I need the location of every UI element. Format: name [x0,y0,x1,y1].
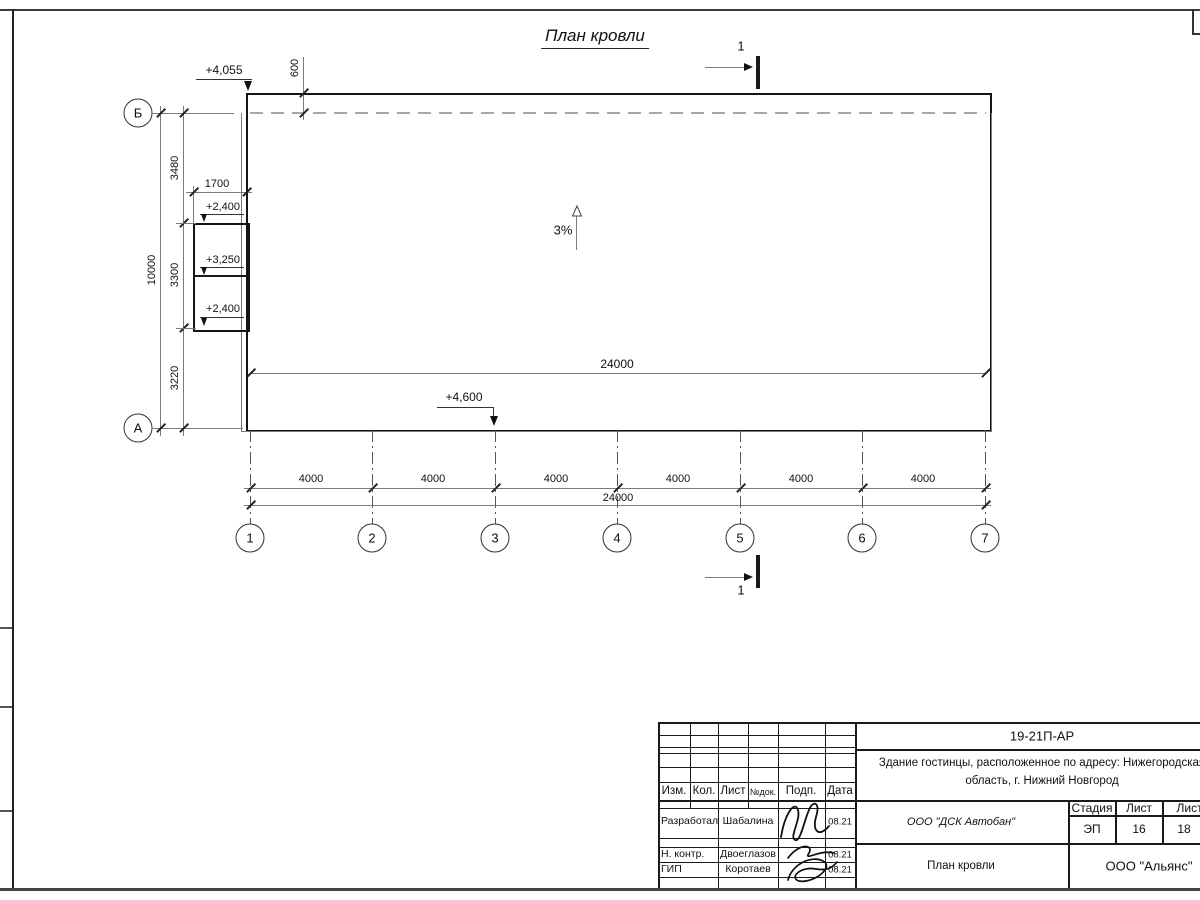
tb-line [658,722,1200,724]
section-mark-arrow [744,573,753,581]
drawing-sheet: План кровли Б А 3480 3300 3220 10000 600… [0,0,1200,900]
tb-role: Н. контр. [661,848,704,860]
frame-corner-horizontal [1192,33,1200,35]
frame-top [0,9,1200,11]
column-axis-bubble: 6 [848,524,877,553]
parapet-edge-right [991,113,992,432]
margin-tick [0,627,12,629]
axis-label: 5 [736,531,743,546]
grid-line [372,430,373,524]
elevation-leader [200,267,244,268]
dimension-line-left-chain [183,106,184,436]
row-axis-bubble: А [124,414,153,443]
tb-name: Коротаев [725,863,770,875]
frame-bottom [0,888,1200,891]
tb-stage-value: ЭП [1083,822,1100,836]
roof-outline [246,93,992,432]
elevation-label: +4,055 [205,63,242,77]
tb-line [1068,800,1070,888]
dim-label: 4000 [911,473,935,485]
tb-line [1162,800,1164,843]
signature-scribble [782,840,840,888]
slope-arrow-head-icon [571,205,583,217]
section-mark-bar [756,56,760,89]
grid-line [495,430,496,524]
axis-label: Б [134,106,143,121]
tb-stage-value: 18 [1177,822,1190,836]
tb-stage-header: Лист [1126,801,1152,815]
frame-left [12,9,14,888]
dim-label: 3480 [169,156,181,180]
tb-line [658,722,660,888]
section-mark-line [705,577,745,578]
tb-stage-value: 16 [1132,822,1145,836]
dim-label: 4000 [421,473,445,485]
tb-project-line2: область, г. Нижний Новгород [965,775,1118,787]
annex-roof-divider [193,275,246,277]
column-axis-bubble: 4 [603,524,632,553]
tb-header-cell: Дата [827,785,852,797]
slope-label: 3% [554,223,573,238]
elevation-leader [437,407,494,408]
margin-tick [0,810,12,812]
elevation-arrow [490,416,498,426]
tb-header-cell: Подп. [786,785,817,797]
dim-label: 1700 [205,178,229,190]
column-axis-bubble: 1 [236,524,265,553]
column-axis-bubble: 5 [726,524,755,553]
tb-role: ГИП [661,863,682,875]
tb-header-cell: Лист [721,785,746,797]
dim-label: 24000 [603,492,634,504]
row-axis-bubble: Б [124,99,153,128]
row-axis-line [152,428,243,429]
tb-header-cell: Кол. [693,785,716,797]
elevation-arrow [201,267,207,275]
dim-label: 10000 [146,255,158,286]
elevation-leader [200,214,244,215]
tb-line [855,843,1200,845]
axis-label: А [134,421,143,436]
drawing-title: План кровли [541,26,649,49]
grid-line [617,430,618,524]
grid-line [740,430,741,524]
axis-label: 6 [858,531,865,546]
grid-line [862,430,863,524]
ridge-dashed-line [250,112,986,114]
dim-label: 600 [289,59,301,77]
dim-label: 24000 [600,357,633,371]
frame-corner-vertical [1192,9,1194,33]
section-mark-label: 1 [737,39,744,54]
elevation-leader [200,317,244,318]
dimension-line-bottom-total [244,505,991,506]
tb-company: ООО "ДСК Автобан" [907,816,1015,828]
elevation-arrow [201,318,207,326]
section-mark-label: 1 [737,583,744,598]
dim-label: 3220 [169,366,181,390]
elevation-arrow [201,214,207,222]
dim-label: 4000 [299,473,323,485]
dimension-line-left-total [160,106,161,436]
tb-line [855,722,857,888]
axis-label: 2 [368,531,375,546]
elevation-label: +2,400 [206,303,240,315]
tb-stage-header: Стадия [1072,801,1113,815]
row-axis-line [152,113,234,114]
tb-header-cell: №док. [750,787,776,797]
extension-line [176,328,196,329]
elevation-label: +4,600 [445,390,482,404]
section-mark-bar [756,555,760,588]
elevation-arrow [244,81,252,91]
axis-label: 3 [491,531,498,546]
tb-doc-number: 19-21П-АР [1010,729,1074,744]
tb-sheet-title: План кровли [927,860,995,872]
margin-tick [0,706,12,708]
column-axis-bubble: 2 [358,524,387,553]
slope-arrow-line [576,214,577,250]
tb-project-line1: Здание гостинцы, расположенное по адресу… [879,757,1200,769]
tb-name: Шабалина [723,815,774,827]
elevation-label: +2,400 [206,201,240,213]
tb-header-cell: Изм. [662,785,687,797]
tb-line [658,800,1200,802]
dim-label: 4000 [544,473,568,485]
dim-label: 4000 [666,473,690,485]
axis-label: 4 [613,531,620,546]
tb-name: Двоеглазов [720,848,776,860]
axis-label: 7 [981,531,988,546]
grid-line [250,430,251,524]
dimension-line-inner-total [250,373,985,374]
dimension-line-1700 [186,192,252,193]
section-mark-line [705,67,745,68]
axis-label: 1 [246,531,253,546]
section-mark-arrow [744,63,753,71]
dim-label: 4000 [789,473,813,485]
annex-roof-outline [193,223,250,332]
tb-role: Разработал [661,815,718,827]
tb-line [718,722,719,888]
dim-label: 3300 [169,263,181,287]
tb-line [855,749,1200,751]
elevation-label: +3,250 [206,254,240,266]
column-axis-bubble: 7 [971,524,1000,553]
tb-line [1068,815,1200,817]
grid-line [985,430,986,524]
tb-line [690,722,691,808]
column-axis-bubble: 3 [481,524,510,553]
tb-line [1115,800,1117,843]
tb-org: ООО "Альянс" [1106,859,1193,874]
tb-stage-header: Листов [1177,801,1200,815]
